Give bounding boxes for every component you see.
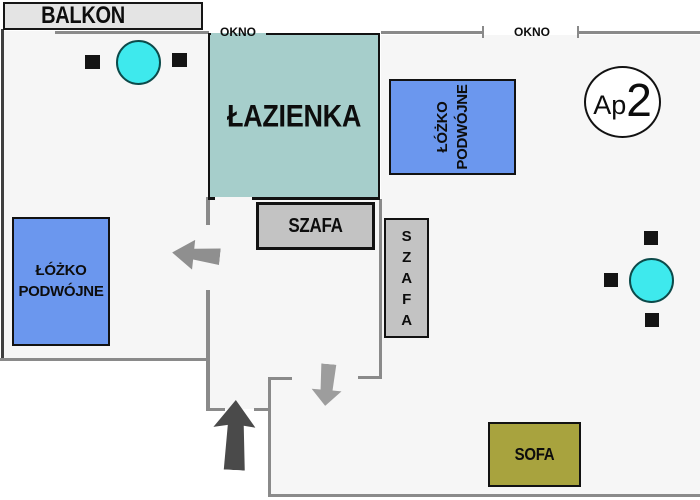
wardrobe-hall: SZAFA [256, 202, 375, 250]
bathroom-room: ŁAZIENKA [208, 33, 380, 197]
badge-prefix: Ap [593, 90, 626, 121]
double-bed-right-label: ŁÓŻKO PODWÓJNE [432, 84, 473, 169]
badge-number: 2 [626, 73, 652, 127]
apartment-badge: Ap2 [584, 66, 661, 138]
chair-square [172, 53, 187, 67]
wall-bedroom-right-lower [206, 290, 210, 361]
double-bed-left: ŁÓŻKO PODWÓJNE [12, 217, 110, 346]
wall-bathroom-bottom-a [208, 197, 215, 200]
wardrobe-hall-label: SZAFA [288, 214, 342, 238]
wall-bathroom-bottom-b [252, 197, 380, 200]
table-round-balcony-side [116, 40, 161, 85]
wall-bedroom-right-upper [206, 197, 210, 225]
wall-entry-left [206, 408, 225, 411]
wall-top-right-a [381, 31, 483, 34]
chair-square [644, 231, 658, 245]
wall-left [1, 29, 4, 361]
wall-living-top-left [268, 377, 292, 380]
sofa-label: SOFA [515, 444, 555, 464]
wall-bedroom-top [55, 31, 209, 34]
wall-living-left [268, 377, 271, 497]
floor-plan: BALKON ŁAZIENKA OKNO OKNO ŁÓŻKO PODWÓJNE… [0, 0, 700, 500]
chair-square [604, 273, 618, 287]
window-label-right: OKNO [500, 25, 564, 39]
wall-top-right-b [578, 31, 700, 34]
window-tick-left [482, 26, 484, 38]
balcony-label: BALKON [41, 2, 125, 29]
wardrobe-room-label: SZAFA [399, 226, 415, 331]
chair-square [645, 313, 659, 327]
bathroom-label: ŁAZIENKA [227, 98, 361, 135]
balcony-box: BALKON [3, 2, 203, 30]
chair-square [85, 55, 100, 69]
wall-bottom [268, 494, 700, 497]
window-tick-right [577, 26, 579, 38]
wardrobe-room: SZAFA [384, 218, 429, 338]
wall-hall-left [206, 358, 210, 411]
double-bed-left-label-line1: ŁÓŻKO [18, 261, 103, 281]
sofa: SOFA [488, 422, 581, 487]
double-bed-right-label-line1: ŁÓŻKO [432, 84, 452, 169]
window-label-left: OKNO [207, 25, 269, 39]
double-bed-right-label-line2: PODWÓJNE [453, 84, 473, 169]
double-bed-left-label-line2: PODWÓJNE [18, 282, 103, 302]
double-bed-right: ŁÓŻKO PODWÓJNE [389, 79, 516, 175]
wall-bedroom-bottom [0, 358, 210, 361]
table-round-right [629, 258, 674, 303]
wall-hall-right [379, 199, 382, 379]
